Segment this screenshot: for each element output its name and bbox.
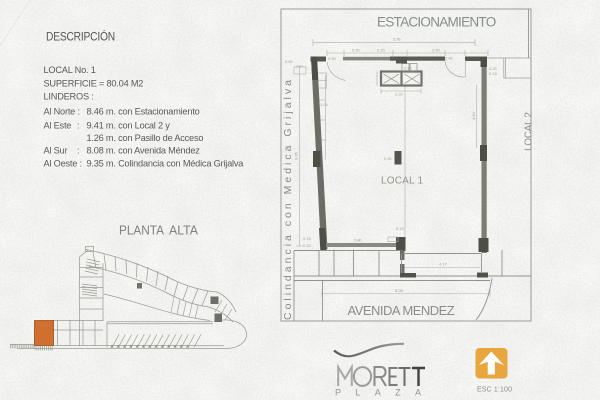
svg-text:Al Sur: Al Sur	[44, 145, 68, 155]
svg-text:8.08 m. con Avenida Méndez: 8.08 m. con Avenida Méndez	[87, 145, 201, 155]
svg-text:0.90: 0.90	[384, 156, 393, 161]
svg-text:0.15: 0.15	[377, 47, 386, 52]
svg-text:9.35 m. Colindancia con Médica: 9.35 m. Colindancia con Médica Grijalva	[87, 159, 245, 169]
svg-text:Al Oeste :: Al Oeste :	[44, 159, 82, 169]
svg-text:0.33: 0.33	[303, 243, 312, 248]
svg-text:9.41 m. con Local 2 y: 9.41 m. con Local 2 y	[87, 120, 171, 130]
svg-text:AVENIDA MENDEZ: AVENIDA MENDEZ	[348, 303, 456, 318]
svg-text:0.15: 0.15	[396, 226, 405, 231]
svg-text:4.17: 4.17	[439, 262, 448, 267]
svg-text:1.26 m. con Pasillo de Acceso: 1.26 m. con Pasillo de Acceso	[87, 133, 204, 143]
svg-text:1.04: 1.04	[320, 102, 329, 107]
svg-text::: :	[77, 120, 79, 130]
svg-text:9.35: 9.35	[294, 151, 299, 160]
svg-text:5.96: 5.96	[393, 37, 402, 42]
svg-text:2.32: 2.32	[395, 92, 404, 97]
svg-text:4.50: 4.50	[471, 111, 476, 120]
svg-text:LOCAL No. 1: LOCAL No. 1	[44, 65, 96, 75]
svg-text:PLANTA: PLANTA	[119, 224, 165, 238]
svg-text:0.90: 0.90	[328, 56, 337, 61]
svg-text::: :	[77, 145, 79, 155]
svg-text:2.80: 2.80	[354, 238, 363, 243]
svg-text:LOCAL 1: LOCAL 1	[381, 176, 424, 187]
svg-text:DESCRIPCIÓN: DESCRIPCIÓN	[46, 31, 115, 44]
svg-text:ESTACIONAMIENTO: ESTACIONAMIENTO	[377, 15, 497, 30]
svg-text:8.08: 8.08	[395, 288, 404, 293]
svg-text:LINDEROS :: LINDEROS :	[44, 92, 94, 102]
svg-text:0.15: 0.15	[303, 236, 312, 241]
svg-text:8.46 m. con Estacionamiento: 8.46 m. con Estacionamiento	[87, 106, 200, 116]
svg-text:2.40: 2.40	[445, 56, 454, 61]
svg-text:0.60: 0.60	[285, 59, 294, 64]
svg-text:5.50: 5.50	[352, 47, 361, 52]
svg-text:2.40: 2.40	[432, 47, 441, 52]
svg-text:0.90: 0.90	[404, 66, 413, 71]
svg-text:LOCAL 2: LOCAL 2	[524, 112, 535, 151]
svg-text:Al Norte :: Al Norte :	[44, 106, 80, 116]
svg-text:ALTA: ALTA	[169, 224, 199, 238]
svg-text:SUPERFICIE = 80.04 M2: SUPERFICIE = 80.04 M2	[44, 78, 144, 88]
svg-text:Al Este: Al Este	[44, 120, 72, 130]
svg-text:ESC 1:100: ESC 1:100	[477, 387, 512, 394]
svg-text:0.15: 0.15	[489, 71, 498, 76]
